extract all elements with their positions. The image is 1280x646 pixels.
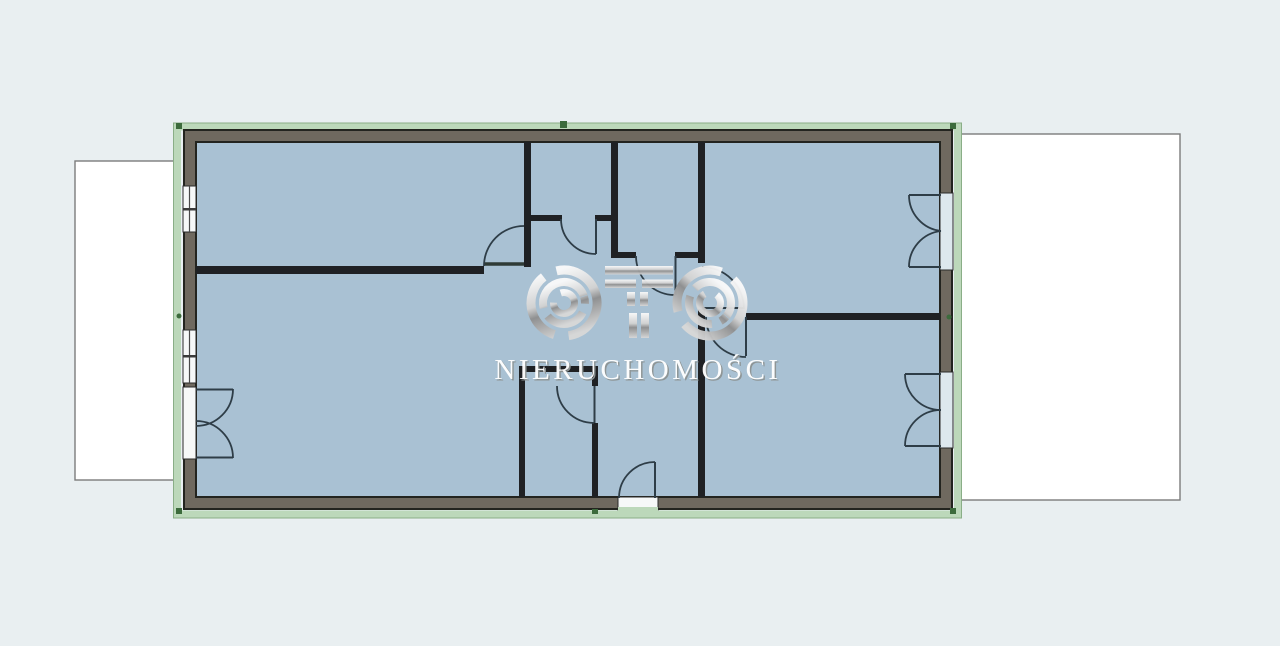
wall-right-rooms-divider: [746, 313, 940, 320]
wall-wc-right-lower: [592, 423, 598, 497]
room-small-1: [531, 142, 611, 215]
window-left-lower: [183, 330, 196, 383]
watermark-subtitle: NIERUCHOMOŚCI: [494, 353, 781, 386]
living-room: [196, 274, 519, 497]
wall-topleft-right: [524, 142, 531, 267]
wc-room: [525, 372, 592, 497]
right-terrace: [958, 134, 1180, 500]
wall-small2-bottom-left: [611, 252, 636, 258]
wall-small1-small2: [611, 142, 618, 253]
left-terrace: [75, 161, 179, 480]
room-small-2: [618, 142, 697, 252]
window-left-upper: [183, 186, 196, 232]
room-bottom-right: [705, 320, 940, 497]
wall-hall-topright-upper: [698, 142, 705, 263]
floor-plan-page: NIERUCHOMOŚCI NIERUCHOMOŚCI: [0, 0, 1280, 646]
room-top-left: [196, 142, 524, 266]
wall-living-divider: [196, 266, 484, 274]
floor-plan-canvas: NIERUCHOMOŚCI NIERUCHOMOŚCI: [0, 0, 1280, 646]
wall-small1-bottom-left: [524, 215, 562, 221]
